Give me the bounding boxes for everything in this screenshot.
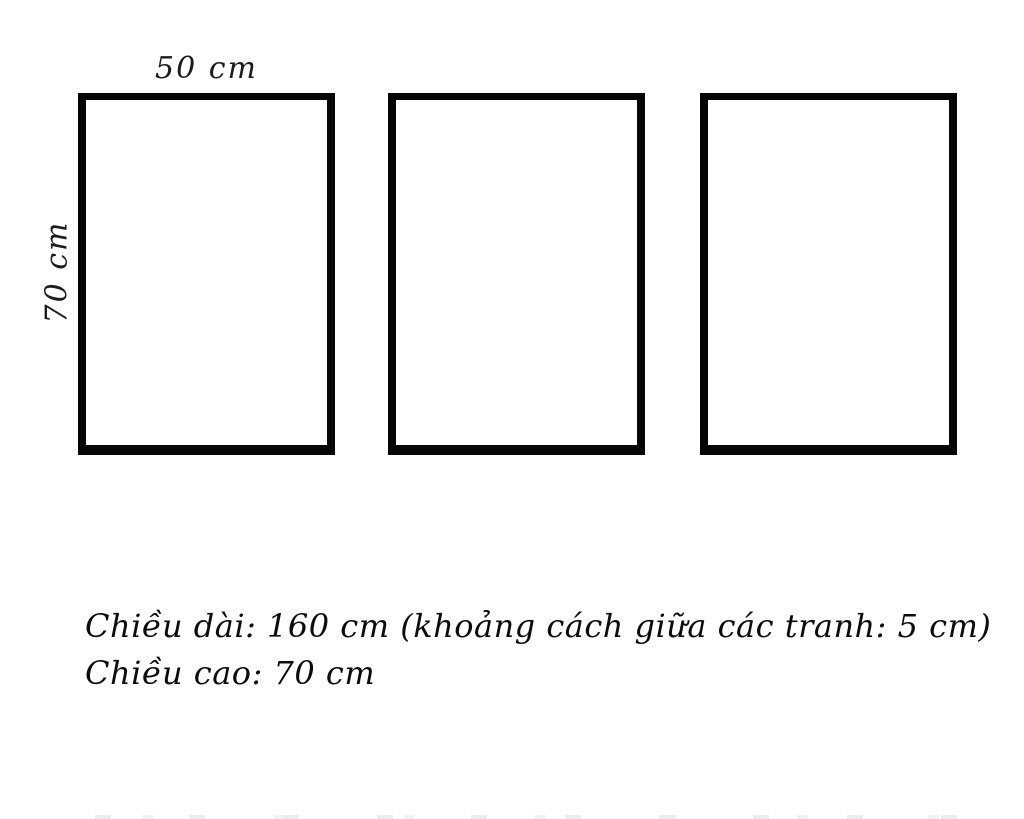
frame-dimension-diagram: 50 cm 70 cm Chiều dài: 160 cm (khoảng cá… bbox=[0, 0, 1024, 819]
cutoff-text-remnant bbox=[95, 815, 1020, 819]
frame-width-label: 50 cm bbox=[78, 51, 335, 86]
picture-frame-3 bbox=[700, 93, 957, 455]
caption-block: Chiều dài: 160 cm (khoảng cách giữa các … bbox=[85, 603, 991, 697]
caption-total-length: Chiều dài: 160 cm (khoảng cách giữa các … bbox=[85, 603, 991, 650]
picture-frame-1 bbox=[78, 93, 335, 455]
caption-total-height: Chiều cao: 70 cm bbox=[85, 650, 991, 697]
frame-height-label: 70 cm bbox=[40, 221, 75, 324]
picture-frame-2 bbox=[388, 93, 645, 455]
